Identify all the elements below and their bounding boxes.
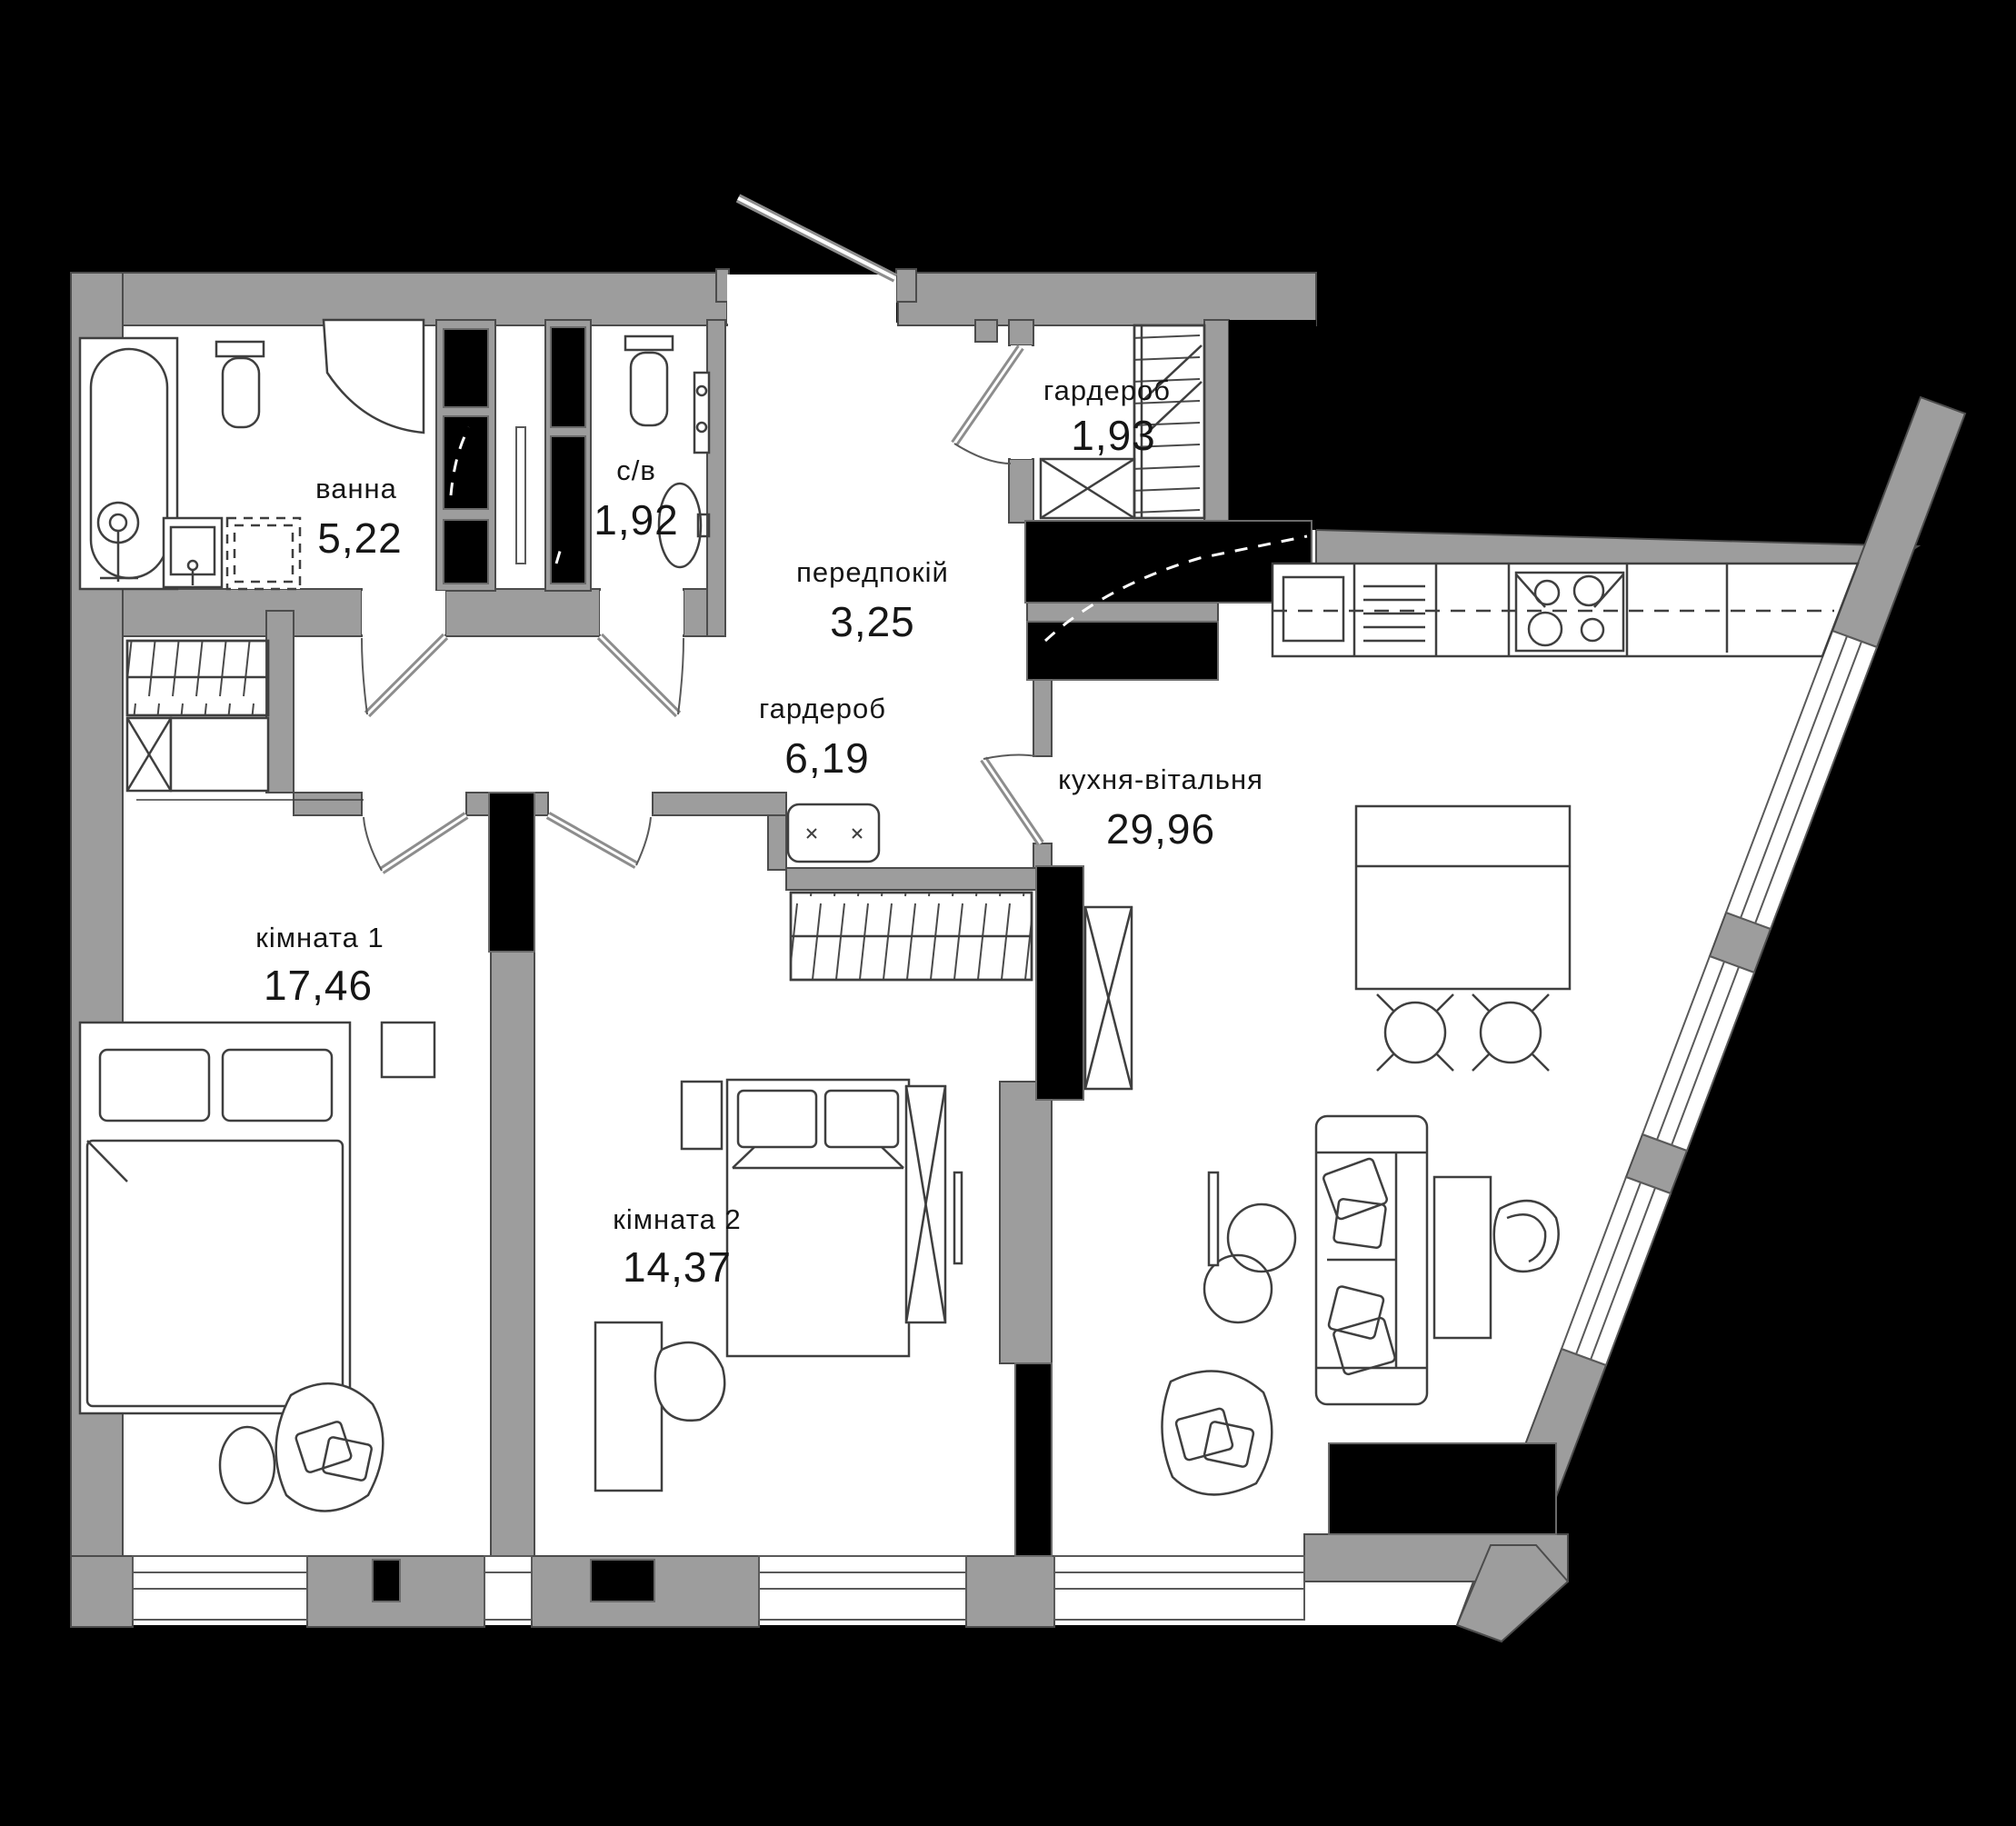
- shaft-a1: [444, 329, 488, 407]
- kitchen-counter: [1272, 564, 1858, 656]
- shaft-band-2: [1027, 622, 1218, 680]
- void-top-right: [1229, 320, 1316, 530]
- wall-top-left: [71, 273, 727, 325]
- window-room1b: [484, 1556, 532, 1620]
- label-room1: кімната 1: [255, 922, 384, 953]
- wc-shower-fitting: [694, 373, 709, 453]
- sink-bathroom: [164, 518, 222, 587]
- label-bathroom: ванна: [315, 473, 397, 504]
- toilet-wc: [625, 336, 673, 425]
- label-wardrobe-large: гардероб: [759, 693, 886, 724]
- wall-wr193-left-top: [1009, 320, 1033, 345]
- wall-step: [768, 815, 786, 870]
- area-wardrobe-small: 1,93: [1071, 412, 1156, 459]
- shaft-living-bottom: [1329, 1443, 1556, 1534]
- pier-bottom-corner: [71, 1556, 133, 1627]
- pier-bottom-3: [966, 1556, 1054, 1627]
- niche-door: [516, 427, 525, 564]
- wall-wardrobe-room2-b: [653, 793, 786, 815]
- shaft-band-1: [1025, 521, 1312, 603]
- living-armchair-right: [1494, 1201, 1559, 1272]
- label-hallway: передпокій: [796, 556, 949, 588]
- wall-band-strip: [1027, 603, 1218, 622]
- wall-wr193-left-bottom: [1009, 459, 1033, 523]
- dining-table: [1356, 806, 1570, 989]
- wall-closet-nook: [266, 611, 294, 793]
- room1-armchair: [276, 1383, 384, 1511]
- living-armchair-bottom: [1162, 1371, 1272, 1494]
- shaft-living-left: [1015, 1363, 1052, 1556]
- wall-wardrobe-room2-a: [534, 793, 548, 815]
- shaft-pier1: [373, 1560, 400, 1601]
- label-room2: кімната 2: [613, 1203, 741, 1235]
- wall-room2-living: [1000, 1082, 1052, 1363]
- floor-mirror: [1209, 1172, 1218, 1265]
- shaft-pier2: [591, 1560, 654, 1601]
- floor-plan-svg: ванна 5,22 с/в 1,92 передпокій 3,25 гард…: [0, 0, 2016, 1826]
- area-kitchen-living: 29,96: [1106, 805, 1215, 853]
- room1-nightstand: [382, 1023, 434, 1077]
- wall-hall-kitchen-b: [1033, 843, 1052, 868]
- wall-bath-bottom-2: [445, 589, 600, 636]
- dining-chair-1: [1377, 994, 1453, 1071]
- wall-top-right: [898, 273, 1316, 325]
- shaft-divider: [489, 793, 534, 952]
- window-living-bottom: [1054, 1556, 1304, 1620]
- wall-divider-rooms: [491, 952, 534, 1556]
- dining-chair-2: [1472, 994, 1549, 1071]
- jamb-entrance-left: [716, 269, 729, 302]
- coffee-table: [1434, 1177, 1491, 1338]
- wall-bath-bottom-1: [123, 589, 362, 636]
- room1-bed: [80, 1023, 350, 1413]
- wall-wc-right: [707, 320, 725, 636]
- wall-hall-kitchen-a: [1033, 680, 1052, 756]
- window-room1: [133, 1556, 307, 1620]
- area-wc: 1,92: [594, 496, 679, 544]
- label-wc: с/в: [616, 454, 656, 486]
- area-wardrobe-large: 6,19: [784, 734, 870, 782]
- wall-wr193-right: [1204, 320, 1229, 524]
- area-room1: 17,46: [264, 962, 373, 1009]
- jamb-entrance-right: [896, 269, 916, 302]
- washing-machine: [227, 518, 300, 589]
- label-wardrobe-small: гардероб: [1043, 374, 1171, 406]
- entrance-door: [727, 198, 896, 324]
- wall-wr193-step: [975, 320, 997, 342]
- label-kitchen-living: кухня-вітальня: [1058, 763, 1263, 795]
- wall-wardrobe-room1-b: [466, 793, 491, 815]
- hall-bench: [788, 804, 879, 862]
- shaft-kitchen-left: [1036, 866, 1083, 1100]
- kitchen-tall-cabinet: [1085, 907, 1132, 1089]
- pier-slant-top: [1832, 397, 1965, 647]
- floor-plan-canvas: ванна 5,22 с/в 1,92 передпокій 3,25 гард…: [0, 0, 2016, 1826]
- shaft-b1: [551, 327, 585, 427]
- area-bathroom: 5,22: [317, 514, 403, 562]
- shaft-a3: [444, 520, 488, 584]
- sofa: [1316, 1116, 1427, 1404]
- wall-room2-top: [786, 868, 1036, 890]
- wall-wardrobe-room1-a: [294, 793, 362, 815]
- window-room2: [759, 1556, 966, 1620]
- area-hallway: 3,25: [830, 598, 915, 645]
- toilet-bathroom: [216, 342, 264, 427]
- room2-closet: [791, 893, 1032, 980]
- area-room2: 14,37: [623, 1243, 732, 1291]
